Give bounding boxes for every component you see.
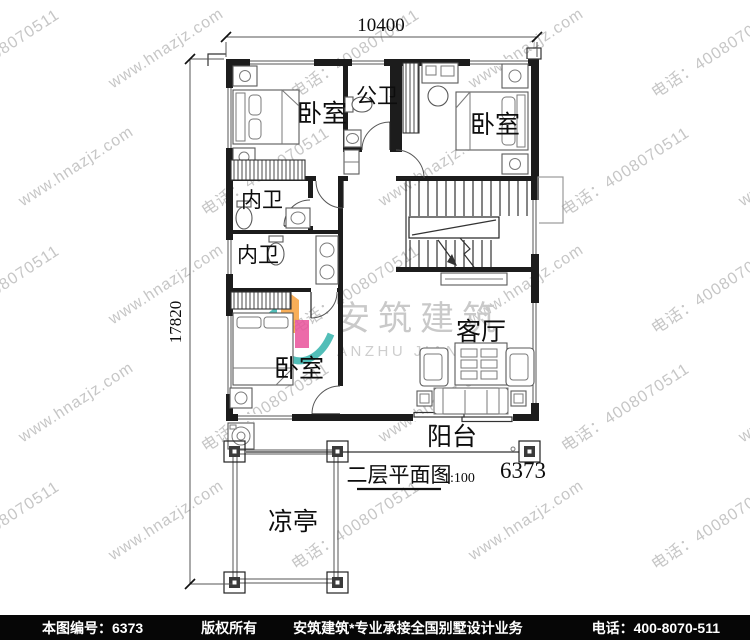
- sofa-icon: [434, 388, 508, 414]
- wardrobe-icon: [403, 63, 419, 133]
- drawing-title: 二层平面图: [347, 464, 452, 487]
- nightstand-icon: [502, 154, 528, 174]
- footer-slogan: 安筑建筑*专业承接全国别墅设计业务: [293, 618, 522, 638]
- side-table-icon: [417, 391, 432, 406]
- label-bedroom-bottom: 卧室: [274, 355, 324, 383]
- coffee-table-icon: [455, 343, 507, 385]
- dimension-left: 17820: [166, 54, 232, 589]
- corner-stub-top-right: [527, 48, 541, 59]
- label-balcony: 阳台: [427, 423, 477, 451]
- stair-break-mark: [460, 238, 474, 267]
- label-living-room: 客厅: [456, 318, 506, 346]
- label-public-bathroom: 公卫: [356, 85, 398, 108]
- label-pavilion: 凉亭: [268, 508, 318, 536]
- sink-icon: [286, 208, 310, 228]
- footer-bar: 本图编号：6373 版权所有 安筑建筑*专业承接全国别墅设计业务 电话：400-…: [0, 615, 750, 640]
- side-table-icon: [511, 391, 526, 406]
- stairs-icon: [406, 181, 527, 267]
- label-ensuite-lower: 内卫: [237, 244, 279, 267]
- dimension-top: 10400: [221, 15, 542, 57]
- drain-dot: [511, 447, 515, 451]
- armchair-icon: [420, 348, 448, 386]
- footer-phone: 电话：400-8070-511: [592, 618, 720, 638]
- nightstand-icon: [233, 66, 257, 86]
- title-block: 二层平面图 1:100 6373: [347, 458, 547, 489]
- corner-stub-top-left: [208, 54, 226, 66]
- label-ensuite-upper: 内卫: [241, 189, 283, 212]
- room-public-bathroom: [344, 97, 372, 174]
- floor-plan-sheet: 电话：4008070511www.hnazjz.com电话：4008070511…: [0, 0, 750, 640]
- label-bedroom-top-left: 卧室: [297, 100, 347, 128]
- dim-height-label: 17820: [166, 301, 185, 344]
- nightstand-icon: [230, 388, 252, 408]
- nightstand-icon: [502, 64, 528, 88]
- label-bedroom-top-right: 卧室: [470, 111, 520, 139]
- floor-plan-canvas: 安筑建筑 ANZHU JIANZHU: [0, 0, 750, 615]
- drawing-scale: 1:100: [443, 471, 475, 486]
- sink-icon: [344, 130, 361, 147]
- bed-icon: [233, 90, 299, 144]
- dim-width-label: 10400: [357, 15, 405, 36]
- wardrobe-icon: [231, 292, 291, 309]
- washing-machine-icon: [228, 423, 254, 449]
- exterior-bay: [538, 177, 563, 223]
- armchair-icon: [506, 348, 534, 386]
- footer-copyright: 版权所有: [201, 618, 257, 638]
- vanity-icon: [316, 236, 338, 284]
- footer-drawing-no: 本图编号：6373: [42, 618, 143, 638]
- chair-icon: [428, 86, 448, 106]
- room-bedroom-top-left: [231, 66, 305, 180]
- room-bedroom-bottom: [230, 292, 293, 408]
- wardrobe-icon: [231, 160, 305, 180]
- drawing-number: 6373: [500, 458, 546, 483]
